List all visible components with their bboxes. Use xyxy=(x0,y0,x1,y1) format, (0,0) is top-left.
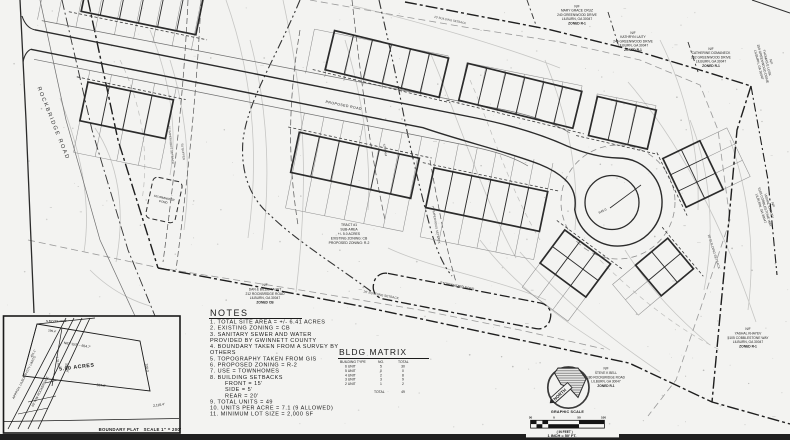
svg-text:GRAPHIC SCALE: GRAPHIC SCALE xyxy=(551,410,584,414)
svg-text:ZONED R-1: ZONED R-1 xyxy=(624,48,642,52)
svg-text:ZONED R-1: ZONED R-1 xyxy=(597,384,614,388)
svg-text:4. BOUNDARY TAKEN FROM A SURVE: 4. BOUNDARY TAKEN FROM A SURVEY BY xyxy=(210,344,339,350)
svg-text:1: 1 xyxy=(380,382,382,386)
svg-text:ZONED R-1: ZONED R-1 xyxy=(568,21,586,25)
svg-text:BOUNDARY PLAT SCALE 1″ = 200: BOUNDARY PLAT SCALE 1″ = 200′ xyxy=(99,427,182,432)
svg-text:3. SANITARY SEWER AND WATER: 3. SANITARY SEWER AND WATER xyxy=(210,332,312,338)
svg-text:212 ROCKBRIDGE ROAD: 212 ROCKBRIDGE ROAD xyxy=(245,292,285,296)
svg-text:6 UNIT: 6 UNIT xyxy=(345,365,356,369)
svg-text:11. MINIMUM LOT SIZE = 2,000 S: 11. MINIMUM LOT SIZE = 2,000 SF xyxy=(210,412,314,418)
svg-text:STEVE K BELL: STEVE K BELL xyxy=(595,371,617,375)
svg-text:LILBURN, GA 30047: LILBURN, GA 30047 xyxy=(250,296,281,300)
svg-text:7. USE = TOWNHOMES: 7. USE = TOWNHOMES xyxy=(210,369,279,375)
svg-text:N/F: N/F xyxy=(745,327,750,331)
svg-text:49: 49 xyxy=(401,390,405,394)
svg-text:5105 COBBLESTONE WAY: 5105 COBBLESTONE WAY xyxy=(728,336,770,340)
svg-text:REAR = 20': REAR = 20' xyxy=(225,393,259,399)
svg-text:2: 2 xyxy=(402,382,404,386)
svg-text:30: 30 xyxy=(401,365,405,369)
svg-text:N/F: N/F xyxy=(603,367,608,371)
svg-text:9: 9 xyxy=(402,378,404,382)
svg-text:ZONED CB: ZONED CB xyxy=(256,301,274,305)
svg-text:5. TOPOGRAPHY TAKEN FROM GIS: 5. TOPOGRAPHY TAKEN FROM GIS xyxy=(210,356,317,362)
svg-text:8. BUILDING SETBACKS: 8. BUILDING SETBACKS xyxy=(210,375,283,381)
svg-text:0: 0 xyxy=(402,369,404,373)
svg-text:DAN & BILLIE FAUST: DAN & BILLIE FAUST xyxy=(249,287,281,291)
svg-text:50: 50 xyxy=(529,416,533,420)
svg-text:SIDE = 5': SIDE = 5' xyxy=(225,387,253,393)
svg-text:8: 8 xyxy=(402,373,404,377)
svg-text:TOTAL: TOTAL xyxy=(398,360,409,364)
svg-text:LILBURN, GA 30047: LILBURN, GA 30047 xyxy=(591,380,621,384)
svg-text:YASHAL KHAYEV: YASHAL KHAYEV xyxy=(735,331,762,335)
svg-text:NO.: NO. xyxy=(378,360,384,364)
svg-text:TOTAL: TOTAL xyxy=(374,390,385,394)
svg-text:BLDG MATRIX: BLDG MATRIX xyxy=(339,347,407,357)
svg-text:180 ROCKBRIDGE ROAD: 180 ROCKBRIDGE ROAD xyxy=(587,375,625,379)
svg-text:2 UNIT: 2 UNIT xyxy=(345,382,356,386)
svg-text:ZONED R-1: ZONED R-1 xyxy=(702,64,720,68)
svg-text:TRACT #1: TRACT #1 xyxy=(341,223,357,227)
svg-text:5: 5 xyxy=(380,365,382,369)
svg-text:LILBURN, GA 30047: LILBURN, GA 30047 xyxy=(733,340,764,344)
svg-text:5 UNIT: 5 UNIT xyxy=(345,369,356,373)
svg-text:3 UNIT: 3 UNIT xyxy=(345,378,356,382)
svg-text:2. EXISTING ZONING = CB: 2. EXISTING ZONING = CB xyxy=(210,326,290,332)
svg-text:PROVIDED BY GWINNETT COUNTY: PROVIDED BY GWINNETT COUNTY xyxy=(210,338,317,344)
svg-text:OTHERS: OTHERS xyxy=(210,350,236,356)
svg-text:+/- 5.0 ACRES: +/- 5.0 ACRES xyxy=(338,232,361,236)
svg-text:ZONED R-1: ZONED R-1 xyxy=(739,345,757,349)
svg-text:N/F: N/F xyxy=(262,283,267,287)
svg-text:3: 3 xyxy=(380,378,382,382)
svg-text:SUB-AREA: SUB-AREA xyxy=(340,228,358,232)
svg-text:100: 100 xyxy=(601,416,606,420)
svg-text:NOTES: NOTES xyxy=(210,308,249,318)
svg-text:EXISTING ZONING: CB: EXISTING ZONING: CB xyxy=(331,237,368,241)
svg-text:9. TOTAL UNITS = 49: 9. TOTAL UNITS = 49 xyxy=(210,399,273,405)
svg-text:6. PROPOSED ZONING = R-2: 6. PROPOSED ZONING = R-2 xyxy=(210,363,297,369)
svg-text:BUILDING TYPE: BUILDING TYPE xyxy=(340,360,366,364)
svg-text:PROPOSED ZONING: R-2: PROPOSED ZONING: R-2 xyxy=(329,241,370,245)
svg-text:1. TOTAL SITE AREA = +/- 6.41: 1. TOTAL SITE AREA = +/- 6.41 ACRES xyxy=(210,320,325,326)
svg-text:10. UNITS PER ACRE = 7.1 (9 AL: 10. UNITS PER ACRE = 7.1 (9 ALLOWED) xyxy=(210,406,333,412)
svg-text:0: 0 xyxy=(380,369,382,373)
svg-text:FRONT = 15': FRONT = 15' xyxy=(225,381,263,387)
svg-text:50: 50 xyxy=(577,416,581,420)
svg-text:2: 2 xyxy=(380,373,382,377)
svg-text:1 INCH = 50′ FT.: 1 INCH = 50′ FT. xyxy=(548,433,577,438)
svg-text:4 UNIT: 4 UNIT xyxy=(345,373,356,377)
svg-text:N 89°23′E 249.9′: N 89°23′E 249.9′ xyxy=(46,319,67,323)
